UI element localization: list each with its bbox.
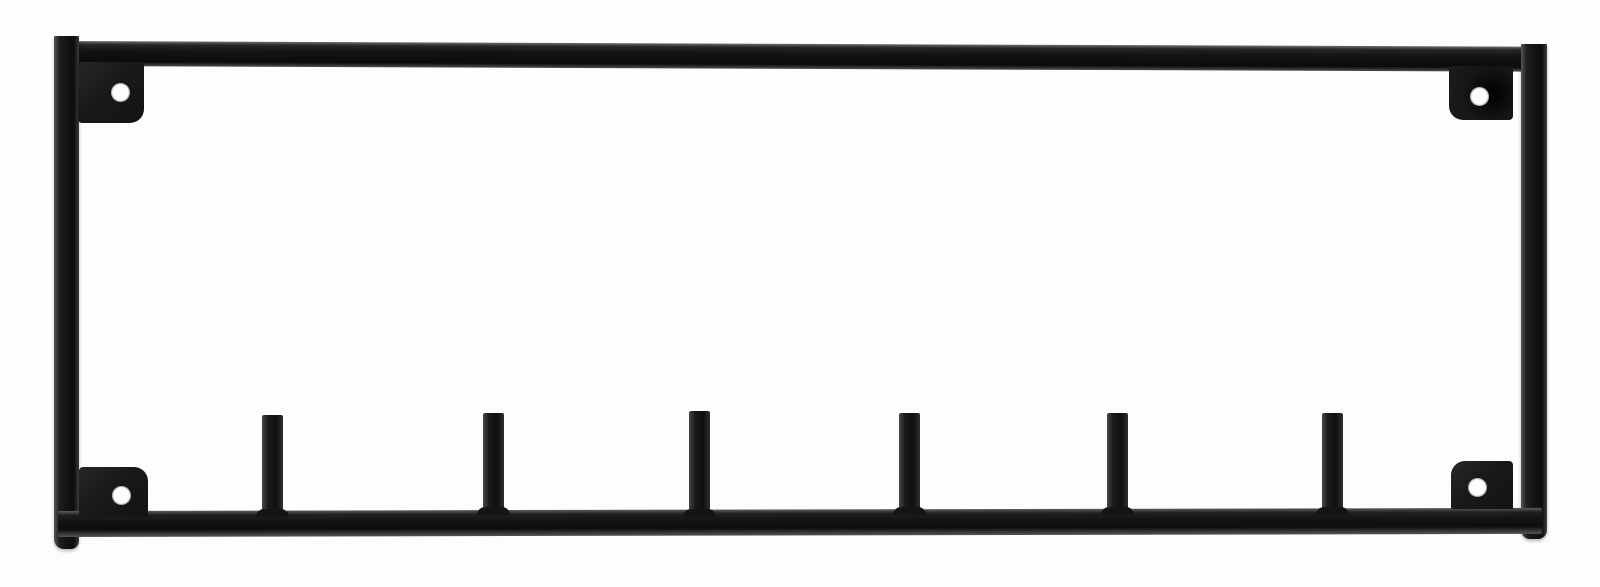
product-photo: [0, 0, 1600, 587]
mounting-plate-top-right: [1449, 66, 1513, 120]
screw-hole-bottom-right: [1468, 478, 1487, 497]
hook-5: [1107, 413, 1128, 515]
frame-left-upright: [54, 36, 79, 549]
hook-6: [1322, 413, 1343, 515]
hook-2: [483, 413, 504, 515]
hook-3: [689, 411, 710, 517]
mounting-plate-top-left: [78, 62, 144, 123]
frame-top-bar: [55, 41, 1546, 72]
mounting-plate-bottom-left: [79, 467, 148, 517]
frame-right-upright: [1521, 44, 1547, 539]
hook-4: [899, 413, 920, 515]
hook-1: [262, 415, 283, 517]
screw-hole-bottom-left: [112, 486, 131, 505]
mounting-plate-bottom-right: [1451, 461, 1513, 509]
screw-hole-top-left: [111, 83, 130, 102]
screw-hole-top-right: [1470, 87, 1489, 106]
